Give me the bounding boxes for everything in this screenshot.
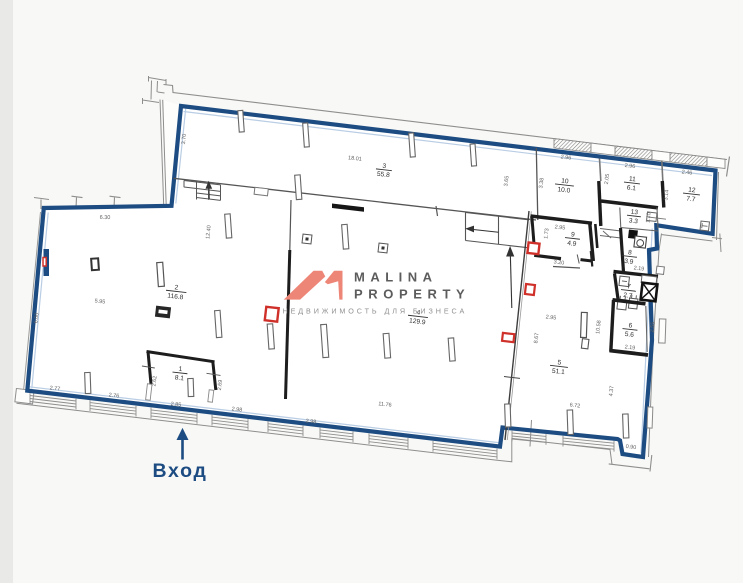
svg-text:2.85: 2.85	[170, 401, 181, 408]
svg-text:2.95: 2.95	[545, 314, 556, 321]
svg-text:3.14: 3.14	[663, 189, 670, 200]
svg-text:3.3: 3.3	[628, 217, 638, 225]
svg-text:4.37: 4.37	[608, 385, 615, 396]
svg-text:Вход: Вход	[153, 460, 208, 482]
svg-text:2.96: 2.96	[560, 154, 571, 161]
svg-text:1.73: 1.73	[543, 228, 550, 239]
svg-text:5.95: 5.95	[94, 298, 105, 305]
svg-text:PROPERTY: PROPERTY	[354, 287, 470, 302]
svg-text:2.7: 2.7	[623, 292, 633, 300]
svg-text:6.1: 6.1	[626, 184, 636, 192]
svg-text:2.62: 2.62	[151, 375, 158, 386]
svg-text:2.98: 2.98	[231, 406, 242, 413]
svg-text:2.69: 2.69	[217, 379, 224, 390]
svg-text:3.9: 3.9	[624, 258, 634, 266]
svg-text:2.96: 2.96	[624, 163, 635, 170]
svg-text:6.72: 6.72	[569, 402, 580, 409]
svg-text:2.95: 2.95	[554, 224, 565, 231]
svg-text:3.65: 3.65	[503, 175, 510, 186]
svg-text:8.67: 8.67	[533, 332, 540, 343]
svg-text:2.98: 2.98	[305, 418, 316, 425]
svg-text:3.70: 3.70	[181, 133, 188, 144]
svg-text:2.46: 2.46	[681, 169, 692, 176]
svg-text:0.90: 0.90	[625, 444, 636, 451]
svg-text:8.1: 8.1	[174, 374, 184, 382]
svg-text:2.55: 2.55	[649, 321, 656, 332]
svg-text:1.10: 1.10	[645, 212, 652, 223]
svg-text:6.30: 6.30	[100, 215, 111, 221]
svg-text:11: 11	[629, 176, 637, 184]
svg-text:2.19: 2.19	[624, 344, 635, 351]
svg-text:MALINA: MALINA	[354, 270, 438, 285]
svg-text:4.9: 4.9	[567, 240, 577, 248]
svg-text:2.05: 2.05	[604, 173, 611, 184]
svg-text:2.77: 2.77	[49, 385, 60, 392]
svg-text:5.6: 5.6	[624, 331, 634, 339]
svg-text:2.19: 2.19	[633, 265, 644, 272]
svg-text:НЕДВИЖИМОСТЬ ДЛЯ БИЗНЕСА: НЕДВИЖИМОСТЬ ДЛЯ БИЗНЕСА	[283, 307, 468, 316]
svg-text:7.7: 7.7	[686, 195, 696, 203]
svg-text:3.20: 3.20	[553, 259, 564, 266]
svg-text:3.38: 3.38	[538, 177, 545, 188]
svg-text:2.76: 2.76	[108, 392, 119, 399]
svg-text:6.00: 6.00	[33, 312, 40, 323]
